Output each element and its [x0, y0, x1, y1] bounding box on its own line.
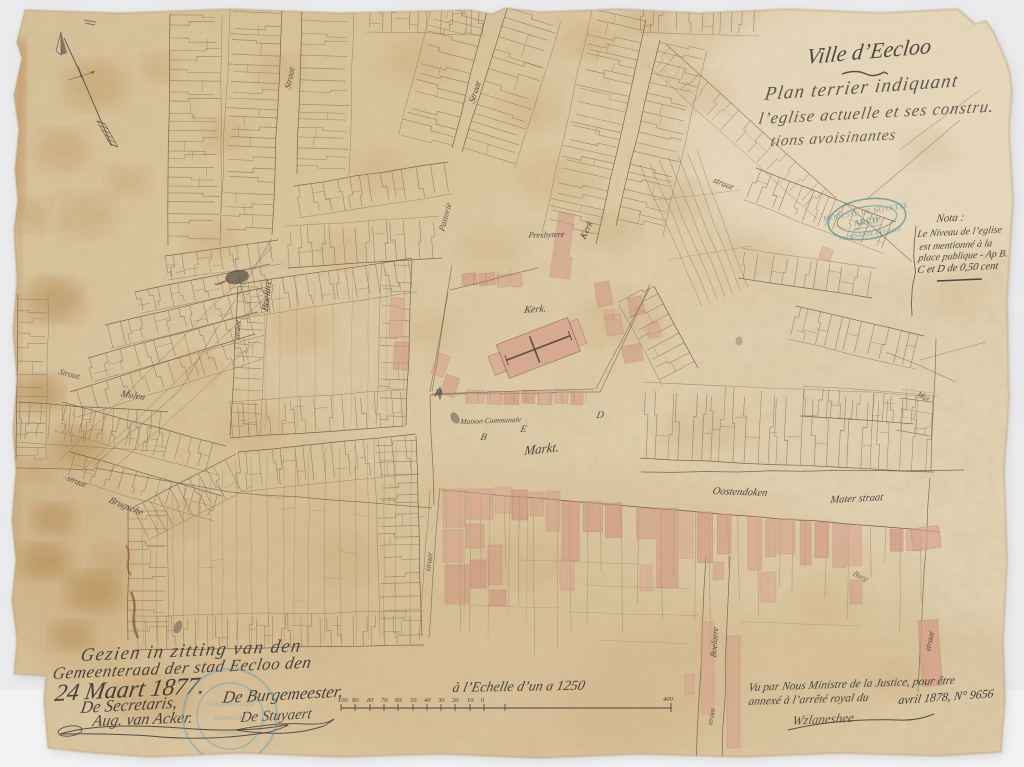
svg-text:50: 50: [410, 697, 417, 704]
svg-text:Oostendoken: Oostendoken: [711, 486, 768, 499]
svg-text:Nota :: Nota :: [935, 212, 966, 225]
svg-text:40: 40: [424, 697, 431, 704]
svg-text:à l’Echelle d’un a 1250: à l’Echelle d’un a 1250: [451, 678, 586, 696]
svg-text:Presbytere: Presbytere: [527, 229, 566, 240]
svg-text:ZEGEL: ZEGEL: [221, 730, 240, 736]
svg-text:80: 80: [367, 697, 374, 704]
svg-text:400: 400: [663, 696, 674, 703]
svg-text:Boelaere: Boelaere: [708, 625, 720, 658]
svg-text:Kerk.: Kerk.: [523, 303, 547, 316]
svg-text:STAD EECLOO: STAD EECLOO: [206, 700, 253, 708]
svg-text:GEMEENTE: GEMEENTE: [214, 716, 247, 722]
svg-text:10: 10: [467, 697, 474, 704]
svg-text:60: 60: [395, 697, 402, 704]
svg-text:30: 30: [437, 697, 445, 704]
svg-text:20: 20: [452, 697, 459, 704]
svg-text:90: 90: [352, 697, 359, 704]
svg-text:70: 70: [381, 697, 388, 704]
